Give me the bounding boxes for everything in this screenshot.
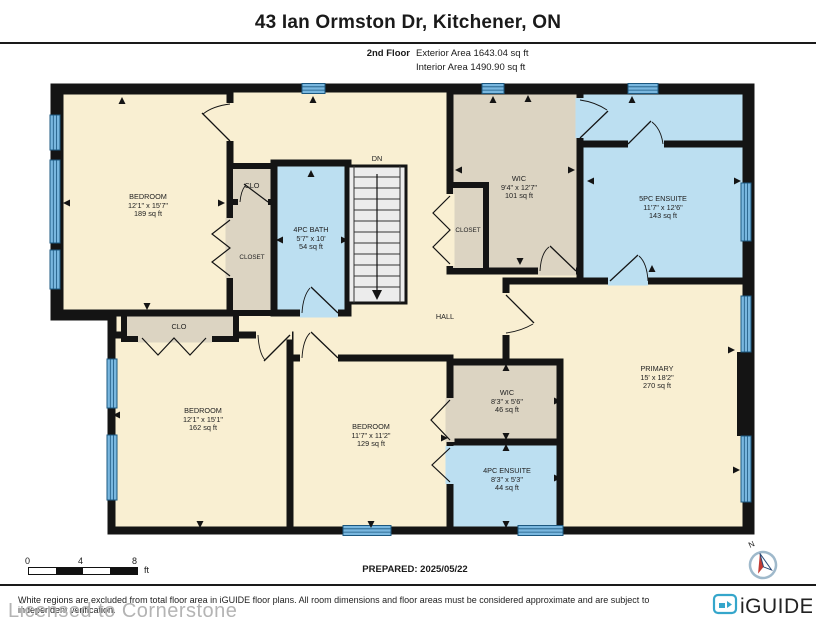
floor-plan-page: 43 Ian Ormston Dr, Kitchener, ON 2nd Flo… [0, 0, 816, 625]
room-name: PRIMARY [640, 364, 673, 373]
room-name: 5PC ENSUITE [639, 194, 687, 203]
window [50, 115, 60, 150]
window [628, 84, 658, 94]
room-area: 46 sq ft [495, 405, 519, 414]
scale-bar-segments [28, 567, 138, 575]
room-area: 143 sq ft [649, 211, 677, 220]
window [302, 84, 325, 94]
room-name: CLO [171, 322, 186, 331]
prepared-date: PREPARED: 2025/05/22 [330, 564, 500, 575]
room-name: WIC [512, 174, 526, 183]
room-name: WIC [500, 388, 514, 397]
room-area: 129 sq ft [357, 439, 385, 448]
room-area: 189 sq ft [134, 209, 162, 218]
window [50, 250, 60, 289]
iguide-logo-text: iGUIDE [740, 595, 812, 618]
window [343, 526, 391, 536]
room-name: BEDROOM [129, 192, 167, 201]
room-area: 162 sq ft [189, 423, 217, 432]
window [741, 183, 751, 241]
license-watermark: Licensed to Cornerstone [8, 600, 237, 623]
window [741, 296, 751, 352]
window [107, 359, 117, 408]
wall-stub [580, 141, 628, 148]
scale-end: 8 [132, 556, 137, 566]
floor-plan-drawing: BEDROOM 12'1" x 15'7" 189 sq ft CLO CLOS… [0, 0, 816, 556]
room-name: CLOSET [455, 227, 480, 234]
room-area: 101 sq ft [505, 191, 533, 200]
iguide-logo: iGUIDE [712, 588, 812, 622]
scale-bar: 0 4 8 ft [28, 556, 188, 578]
window [50, 160, 60, 243]
footer-divider [0, 584, 816, 586]
compass: N [732, 536, 794, 586]
room-name: CLO [244, 181, 259, 190]
room-name: BEDROOM [184, 406, 222, 415]
iguide-logo-icon [714, 595, 736, 613]
wall-stub [664, 141, 746, 148]
compass-n-label: N [747, 539, 756, 550]
window [482, 84, 504, 94]
room-area: 54 sq ft [299, 242, 323, 251]
stairs-dn-label: DN [372, 154, 383, 163]
hall-label: HALL [436, 312, 454, 321]
room-name: CLOSET [239, 254, 264, 261]
room-area: 44 sq ft [495, 483, 519, 492]
window [518, 526, 563, 536]
window [741, 436, 751, 502]
room-bedroom-bottom-left [112, 335, 290, 530]
scale-start: 0 [25, 556, 30, 566]
room-name: 4PC BATH [293, 225, 328, 234]
scale-mid: 4 [78, 556, 83, 566]
room-area: 270 sq ft [643, 381, 671, 390]
wall-segment [737, 352, 752, 436]
room-ensuite-5pc [580, 91, 746, 281]
window [107, 435, 117, 500]
staircase [348, 166, 406, 303]
room-name: 4PC ENSUITE [483, 466, 531, 475]
scale-unit: ft [144, 565, 149, 575]
room-name: BEDROOM [352, 422, 390, 431]
